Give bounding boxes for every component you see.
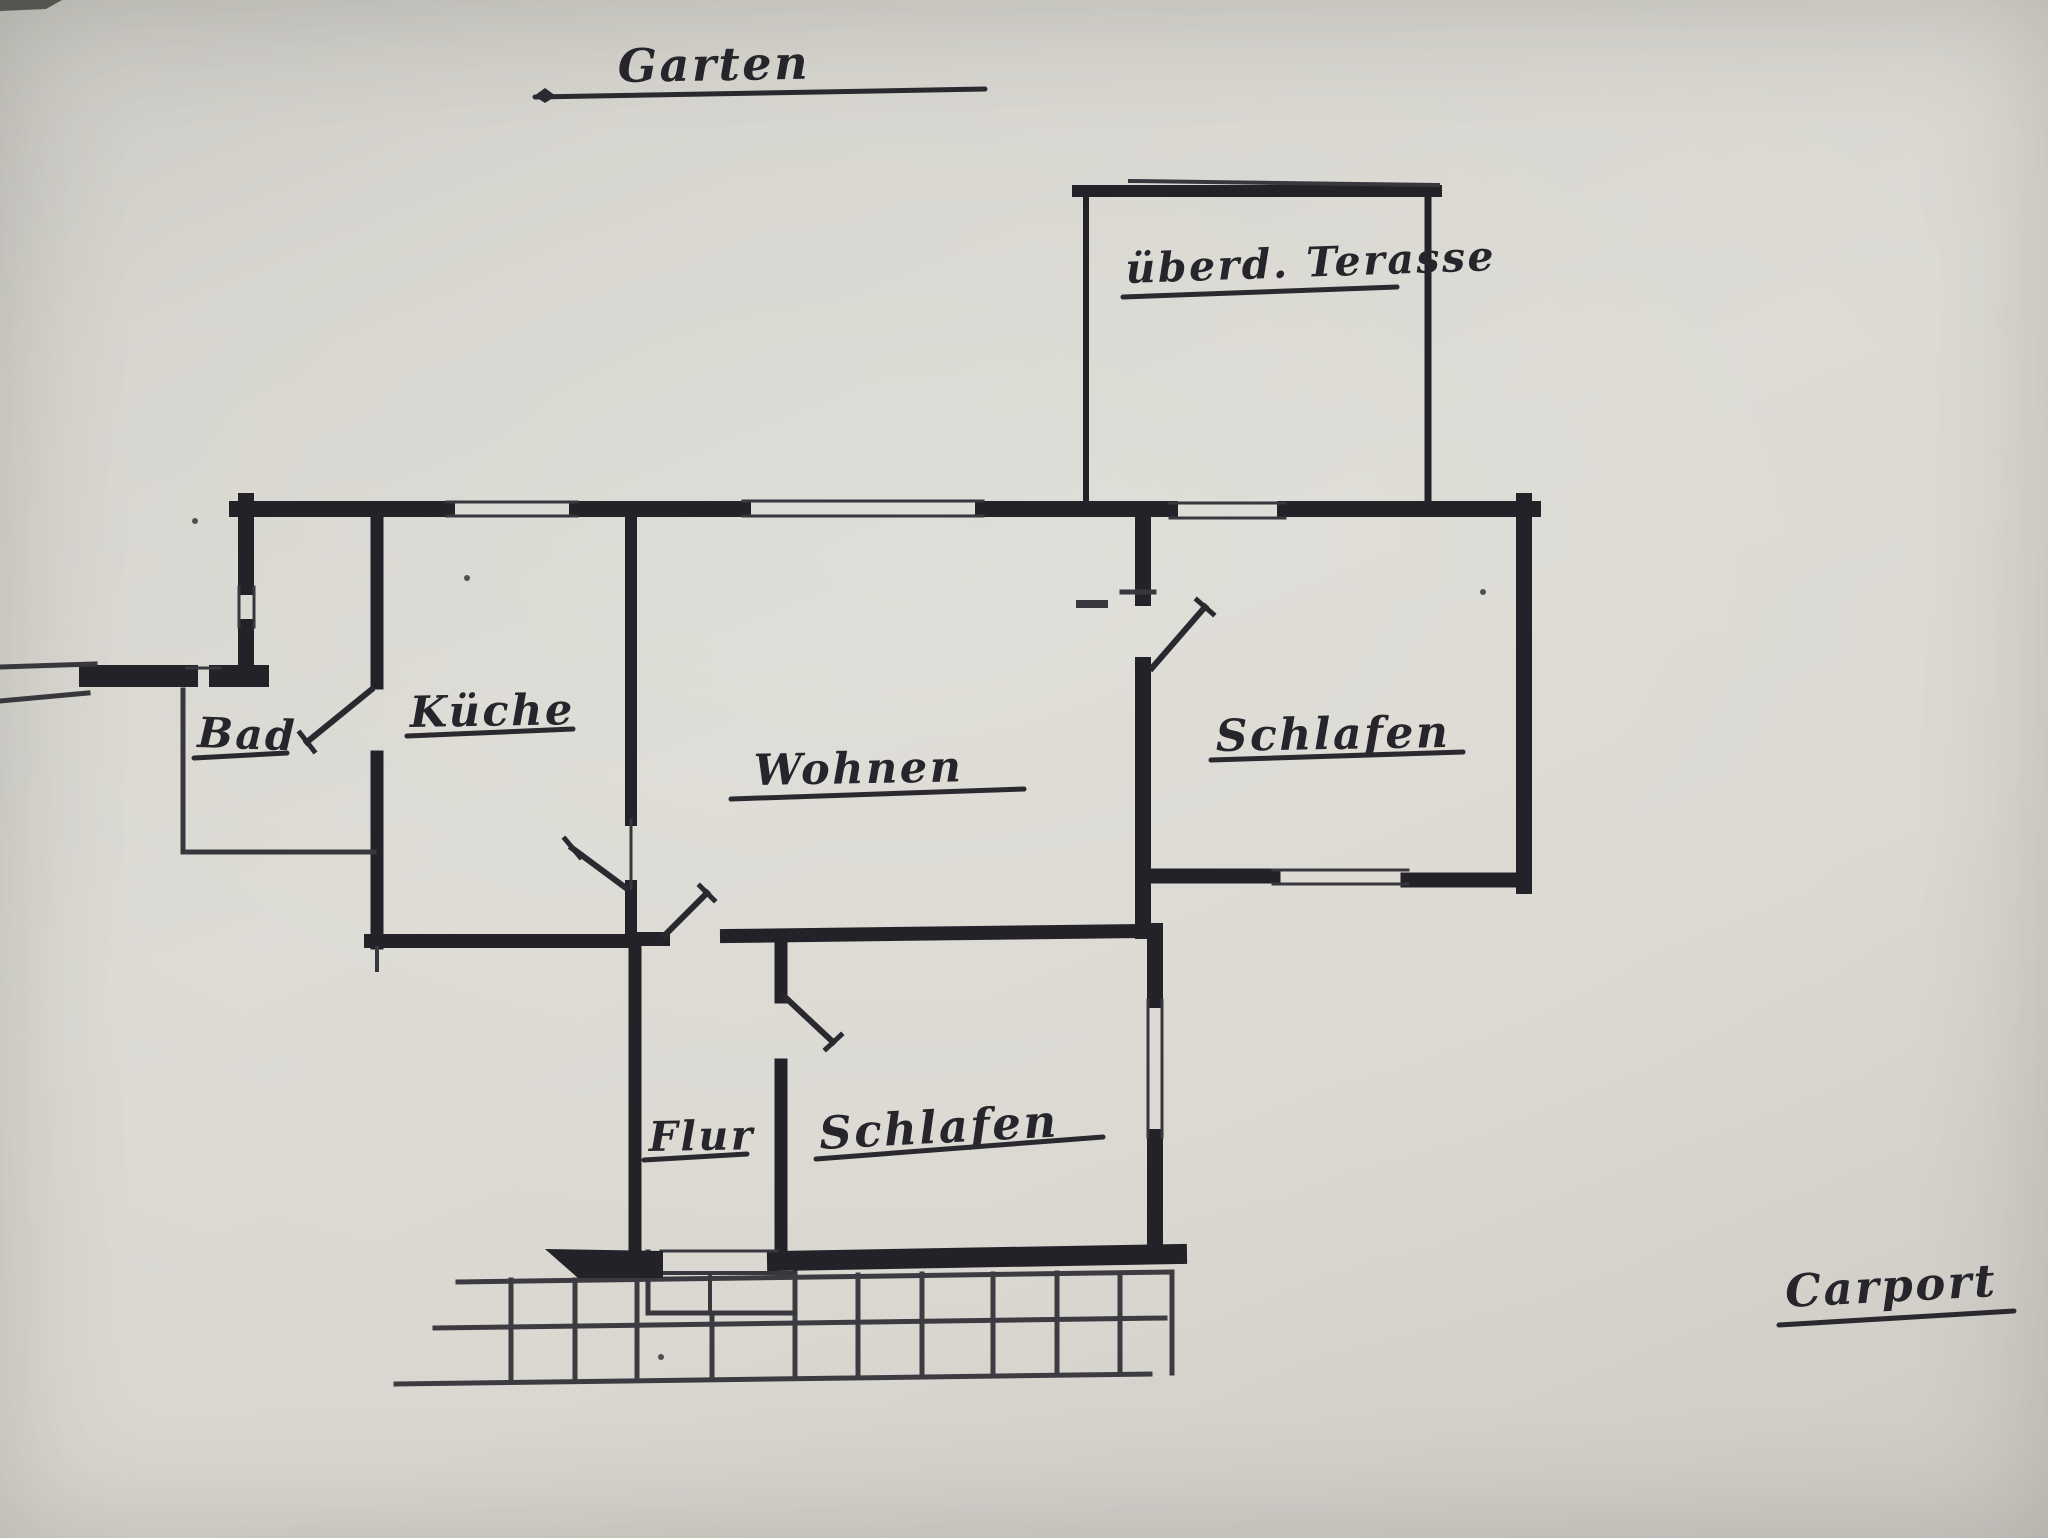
plan-line xyxy=(786,998,833,1042)
plan-line xyxy=(1130,181,1438,185)
entry-wedge-wall xyxy=(545,1249,663,1278)
floor-plan-drawing: Gartenüberd. TerasseBadKücheWohnenSchlaf… xyxy=(0,0,2048,1538)
filled-shapes xyxy=(0,0,663,1278)
handwritten-labels: Gartenüberd. TerasseBadKücheWohnenSchlaf… xyxy=(194,36,2014,1325)
plan-line xyxy=(1152,607,1205,668)
ink-speck xyxy=(1480,589,1486,595)
plan-line xyxy=(727,931,1140,936)
room-label-wohnen: Wohnen xyxy=(753,742,963,796)
plan-line xyxy=(0,693,88,701)
photo-corner-edge xyxy=(0,0,62,11)
plan-line xyxy=(0,664,95,667)
ink-speck xyxy=(658,1354,664,1360)
room-label-terrasse: überd. Terasse xyxy=(1125,232,1497,293)
plan-line xyxy=(665,893,707,935)
plan-line xyxy=(565,839,580,857)
door-swing-lines xyxy=(300,600,1213,1049)
area-label-garten: Garten xyxy=(617,36,810,93)
ink-speck xyxy=(192,518,198,524)
ink-speck xyxy=(464,575,470,581)
area-label-carport: Carport xyxy=(1784,1254,1999,1318)
plan-line xyxy=(458,1272,1172,1282)
paving-grid-lines xyxy=(396,1272,1172,1384)
plan-line xyxy=(777,1254,1177,1261)
plan-line xyxy=(307,690,371,742)
